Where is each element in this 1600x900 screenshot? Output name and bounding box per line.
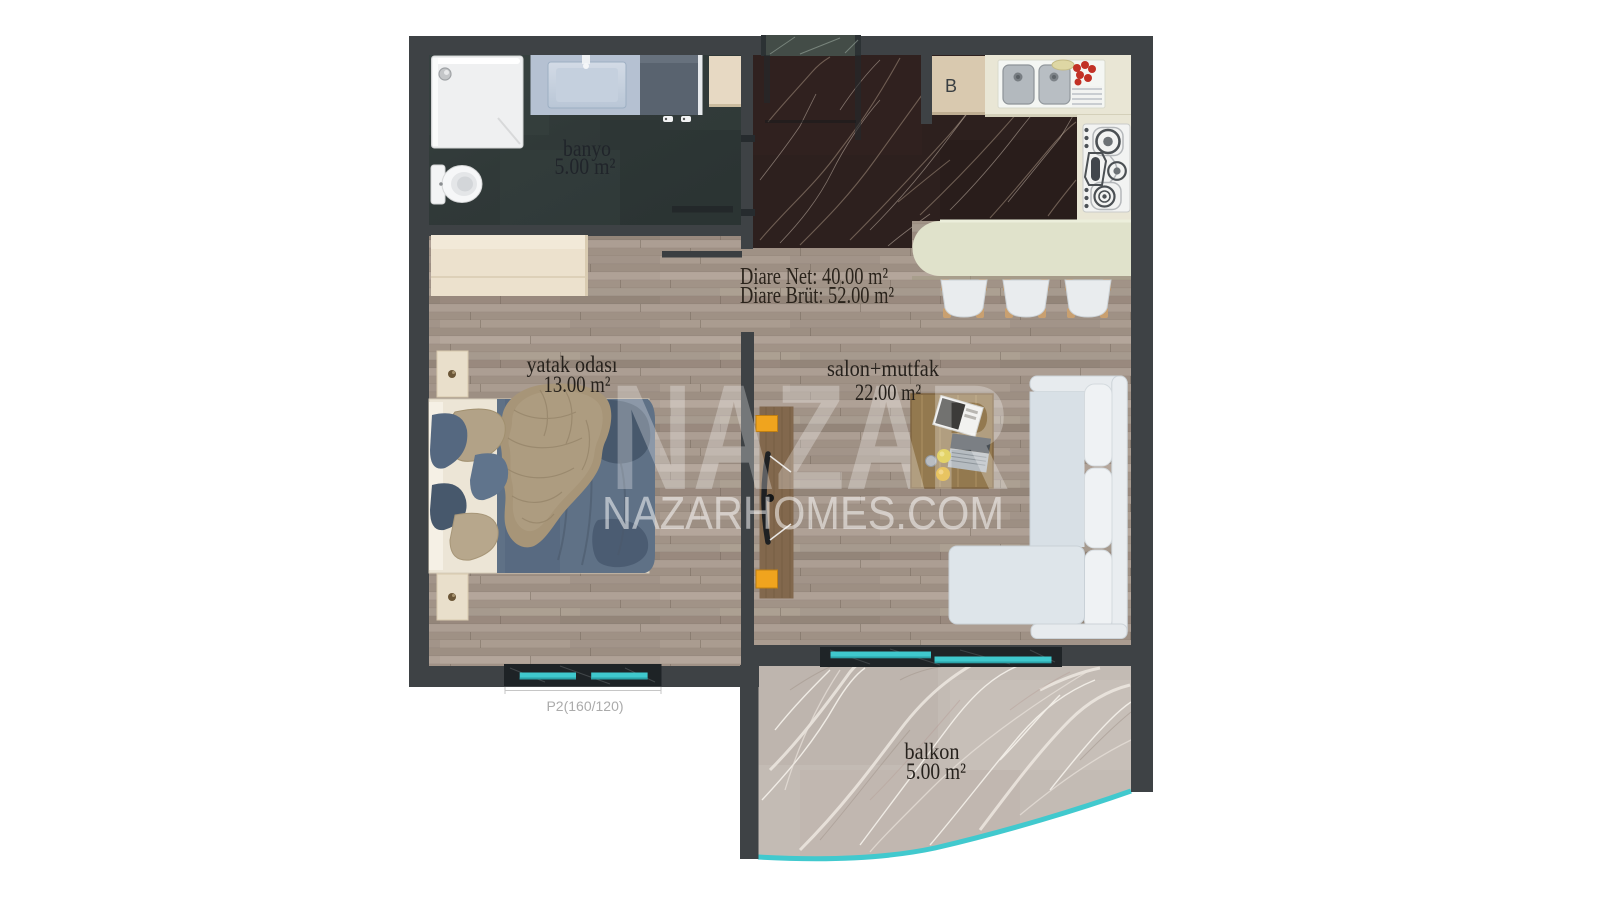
svg-text:B: B bbox=[945, 76, 957, 96]
svg-text:22.00 m²: 22.00 m² bbox=[855, 380, 921, 405]
svg-text:Diare Brüt: 52.00 m²: Diare Brüt: 52.00 m² bbox=[740, 283, 894, 309]
svg-text:P2(160/120): P2(160/120) bbox=[546, 698, 623, 714]
svg-text:NAZARHOMES.COM: NAZARHOMES.COM bbox=[602, 487, 1004, 539]
svg-text:13.00 m²: 13.00 m² bbox=[544, 372, 611, 397]
svg-text:salon+mutfak: salon+mutfak bbox=[827, 356, 939, 381]
svg-text:5.00 m²: 5.00 m² bbox=[555, 154, 616, 179]
svg-text:5.00 m²: 5.00 m² bbox=[906, 759, 966, 784]
